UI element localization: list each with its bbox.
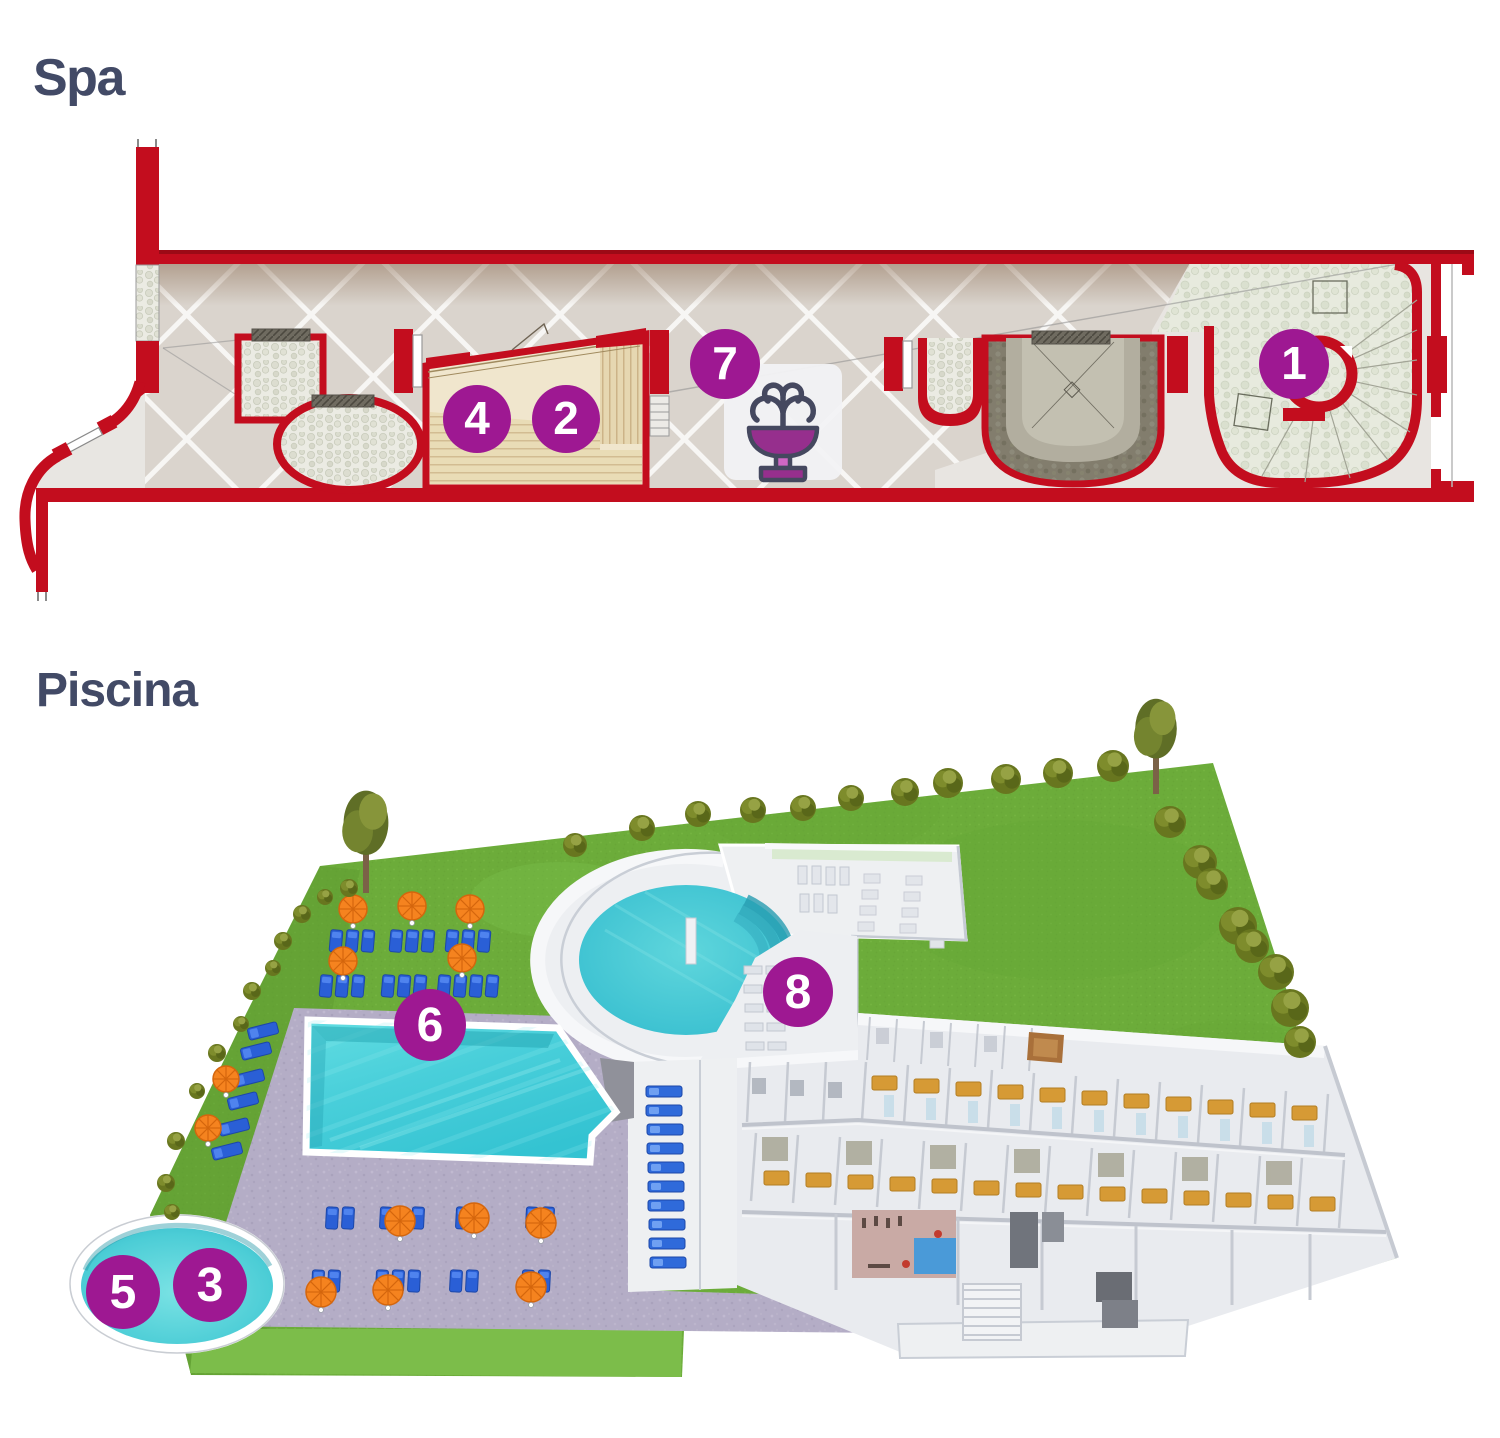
svg-text:4: 4 [464, 392, 490, 444]
svg-text:Piscina: Piscina [36, 664, 198, 717]
svg-text:7: 7 [712, 337, 738, 389]
svg-text:5: 5 [110, 1266, 137, 1319]
svg-text:3: 3 [197, 1259, 224, 1312]
svg-text:Spa: Spa [33, 49, 126, 107]
svg-text:8: 8 [785, 966, 812, 1019]
svg-text:6: 6 [417, 999, 444, 1052]
svg-text:1: 1 [1281, 337, 1307, 389]
svg-text:2: 2 [553, 392, 579, 444]
